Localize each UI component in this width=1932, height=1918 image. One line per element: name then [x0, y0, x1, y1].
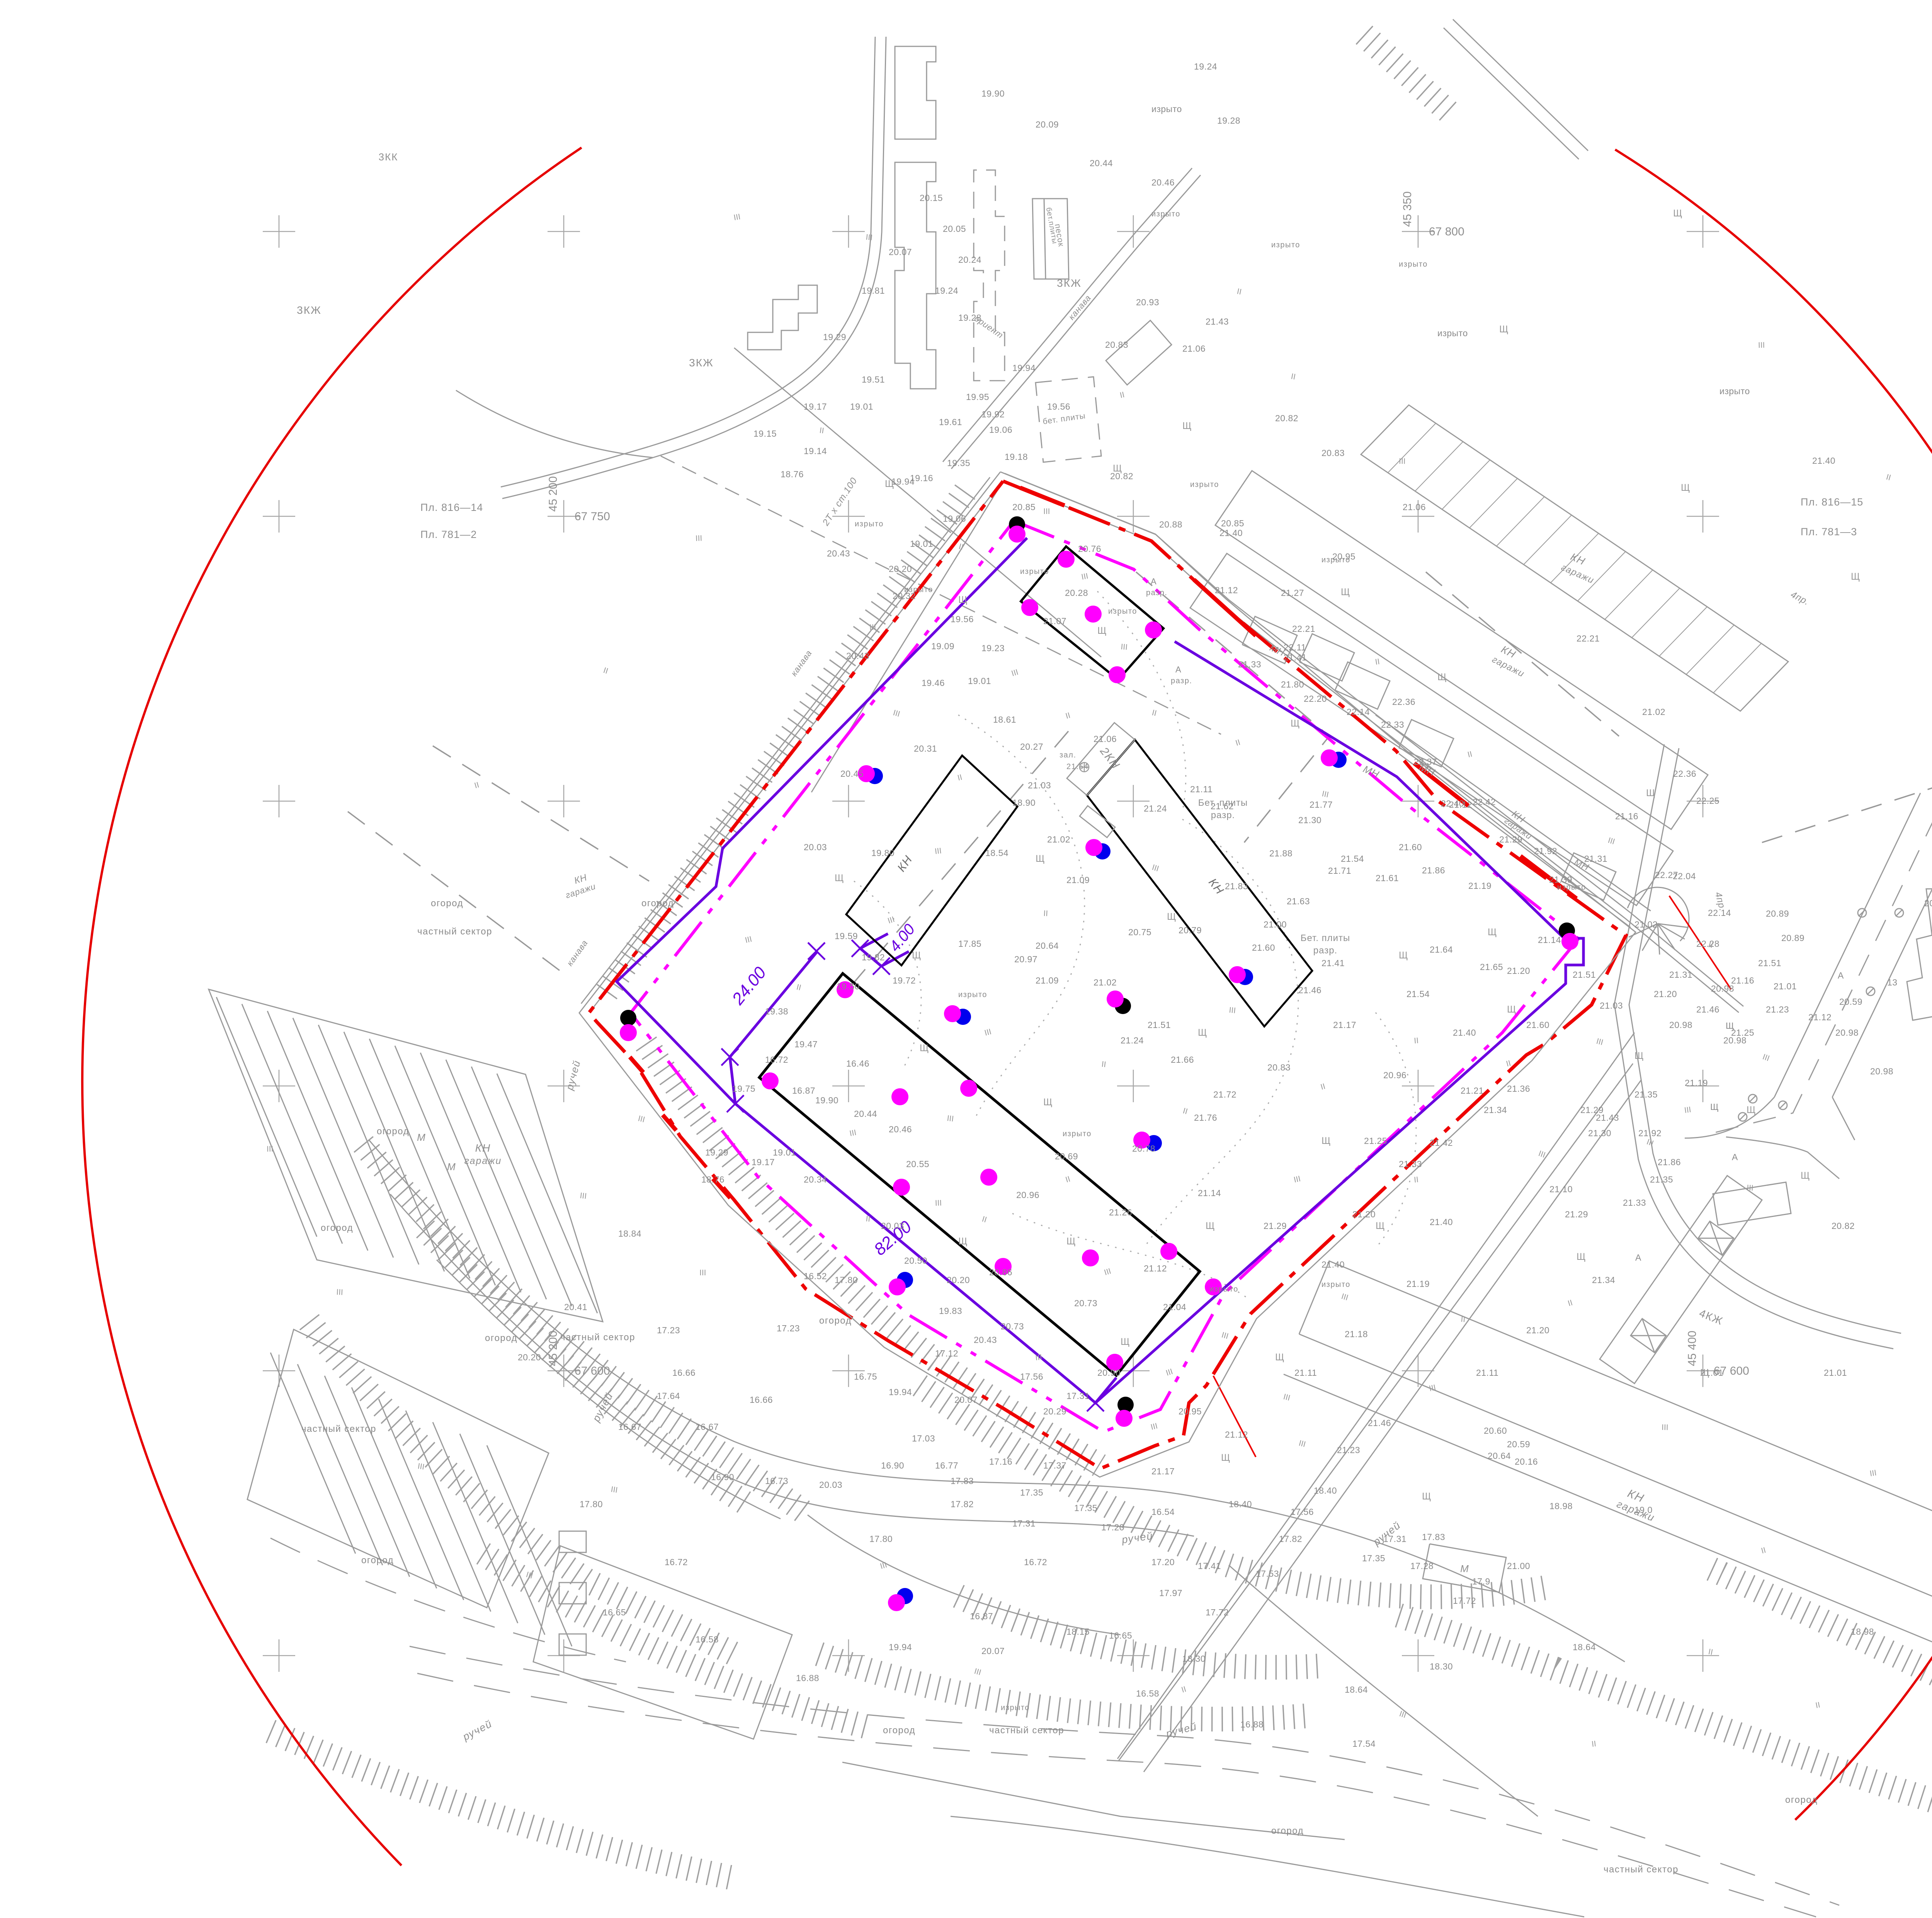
svg-text:Щ: Щ	[1113, 463, 1122, 474]
svg-text:21.19: 21.19	[1468, 881, 1492, 891]
svg-text:21.03: 21.03	[1028, 780, 1051, 790]
svg-text:М: М	[417, 1132, 425, 1143]
svg-text:21.60: 21.60	[1399, 842, 1422, 852]
svg-text:21.51: 21.51	[1148, 1020, 1171, 1030]
svg-text:20.46: 20.46	[889, 1124, 912, 1134]
svg-text:16.72: 16.72	[765, 1055, 788, 1065]
svg-text:19.09: 19.09	[931, 641, 954, 651]
svg-text:17.16: 17.16	[989, 1457, 1012, 1467]
svg-text:21.11: 21.11	[1294, 1368, 1317, 1378]
svg-text:17.28: 17.28	[1410, 1561, 1434, 1571]
svg-text:21.40: 21.40	[1812, 456, 1835, 466]
svg-text:21.02: 21.02	[1642, 707, 1665, 717]
svg-text:20.05: 20.05	[943, 224, 966, 234]
svg-text:21.17: 21.17	[1151, 1466, 1175, 1476]
svg-text:19.61: 19.61	[939, 417, 962, 427]
svg-text:16.58: 16.58	[696, 1634, 719, 1644]
svg-text:А: А	[1635, 1253, 1641, 1263]
svg-text:67 600: 67 600	[575, 1365, 610, 1377]
svg-text:III: III	[1121, 642, 1128, 652]
svg-text:20.64: 20.64	[1488, 1451, 1511, 1461]
svg-text:21.01: 21.01	[1824, 1368, 1847, 1378]
svg-text:20.20: 20.20	[947, 1275, 970, 1285]
svg-text:21.46: 21.46	[1696, 1004, 1719, 1014]
svg-text:21.02: 21.02	[1094, 977, 1117, 987]
svg-text:20.31: 20.31	[914, 744, 937, 754]
svg-text:3КЖ: 3КЖ	[689, 357, 714, 369]
svg-text:18.30: 18.30	[1430, 1661, 1453, 1671]
svg-text:19.56: 19.56	[1047, 402, 1070, 412]
svg-text:21.03: 21.03	[1600, 1001, 1623, 1011]
svg-text:19.38: 19.38	[765, 1006, 788, 1016]
svg-text:21.30: 21.30	[1588, 1128, 1611, 1138]
svg-text:III: III	[1662, 1423, 1668, 1432]
svg-text:21.02: 21.02	[1047, 834, 1070, 844]
svg-text:20.03: 20.03	[804, 842, 827, 852]
svg-text:21.09: 21.09	[1036, 975, 1059, 985]
svg-text:изрыто: изрыто	[1271, 241, 1300, 249]
svg-text:19.14: 19.14	[804, 446, 827, 456]
svg-text:Бет. плиты: Бет. плиты	[1198, 798, 1248, 808]
svg-text:19.94: 19.94	[1012, 363, 1036, 373]
svg-text:21.64: 21.64	[1430, 945, 1453, 955]
svg-text:16.54: 16.54	[1151, 1507, 1175, 1517]
svg-text:А: А	[1732, 1152, 1738, 1162]
svg-text:изрыто: изрыто	[1020, 567, 1049, 576]
svg-text:III: III	[336, 1288, 344, 1297]
svg-text:20.41: 20.41	[564, 1302, 587, 1312]
svg-text:21.12: 21.12	[1144, 1263, 1167, 1273]
svg-text:22.36: 22.36	[1392, 697, 1415, 707]
svg-text:21.72: 21.72	[1213, 1089, 1236, 1099]
svg-text:17.56: 17.56	[1020, 1372, 1043, 1382]
svg-text:21.06: 21.06	[1094, 734, 1117, 744]
svg-text:III: III	[695, 534, 702, 543]
svg-text:20.98: 20.98	[1835, 1028, 1859, 1038]
svg-text:20.95: 20.95	[1179, 1406, 1202, 1416]
svg-text:20.97: 20.97	[1014, 954, 1037, 964]
svg-text:18.76: 18.76	[781, 469, 804, 479]
svg-text:16.87: 16.87	[792, 1086, 815, 1096]
svg-text:17.82: 17.82	[1279, 1534, 1302, 1544]
svg-text:II: II	[1413, 1036, 1419, 1045]
svg-text:20.09: 20.09	[1036, 119, 1059, 129]
svg-text:21.12: 21.12	[1225, 1430, 1248, 1440]
svg-text:20.98: 20.98	[1870, 1066, 1893, 1076]
svg-text:21.61: 21.61	[1376, 873, 1399, 883]
svg-text:II: II	[1413, 1175, 1419, 1184]
svg-text:21.31: 21.31	[1669, 970, 1692, 980]
svg-text:21.88: 21.88	[1269, 848, 1293, 858]
svg-text:17.85: 17.85	[958, 939, 981, 949]
svg-text:20.85: 20.85	[1221, 518, 1244, 528]
svg-text:21.06: 21.06	[1403, 502, 1426, 512]
svg-text:огород: огород	[883, 1725, 915, 1736]
svg-text:17.80: 17.80	[869, 1534, 893, 1544]
svg-text:16.67: 16.67	[696, 1422, 719, 1432]
svg-text:17.97: 17.97	[1159, 1588, 1182, 1598]
svg-text:21.00: 21.00	[1264, 919, 1287, 929]
svg-text:16.87: 16.87	[970, 1611, 993, 1621]
svg-text:21.02: 21.02	[1634, 919, 1658, 929]
svg-text:17.56: 17.56	[1291, 1507, 1314, 1517]
svg-text:20.83: 20.83	[1321, 448, 1345, 458]
svg-text:18.40: 18.40	[1314, 1486, 1337, 1496]
svg-text:17.9: 17.9	[1472, 1576, 1490, 1586]
svg-text:18.54: 18.54	[985, 848, 1009, 858]
svg-text:21.35: 21.35	[1634, 1089, 1658, 1099]
svg-text:18.15: 18.15	[1066, 1627, 1090, 1637]
svg-text:21.41: 21.41	[1284, 652, 1307, 662]
svg-text:45 200: 45 200	[547, 476, 560, 512]
svg-text:частный сектор: частный сектор	[989, 1725, 1064, 1736]
svg-text:21.65: 21.65	[1480, 962, 1503, 972]
svg-text:Щ: Щ	[1206, 1220, 1214, 1231]
svg-text:22.36: 22.36	[1673, 769, 1696, 779]
svg-text:21.12: 21.12	[1215, 585, 1238, 595]
svg-text:III: III	[610, 1485, 618, 1494]
svg-text:22.21: 22.21	[1292, 624, 1315, 634]
svg-text:21.35: 21.35	[1650, 1174, 1673, 1184]
svg-text:20.89: 20.89	[1781, 933, 1804, 943]
svg-text:Пл. 781—3: Пл. 781—3	[1801, 526, 1857, 538]
svg-text:16.65: 16.65	[1109, 1630, 1132, 1641]
svg-text:изрыто: изрыто	[1557, 883, 1586, 892]
svg-text:21.43: 21.43	[1206, 317, 1229, 327]
svg-text:17.72: 17.72	[1453, 1596, 1476, 1606]
svg-text:III: III	[865, 233, 873, 242]
svg-text:19.01: 19.01	[910, 539, 933, 549]
svg-text:20.15: 20.15	[920, 193, 943, 203]
svg-text:20.85: 20.85	[1012, 502, 1036, 512]
svg-text:А: А	[1838, 970, 1844, 980]
svg-text:огород: огород	[361, 1555, 394, 1566]
svg-text:19.01: 19.01	[968, 676, 991, 686]
svg-text:19.47: 19.47	[794, 1039, 818, 1049]
svg-text:изрыто: изрыто	[1437, 328, 1468, 338]
svg-text:20.07: 20.07	[889, 247, 912, 257]
svg-text:17.31: 17.31	[1012, 1518, 1036, 1528]
svg-text:17.20: 17.20	[1101, 1522, 1124, 1532]
svg-text:II: II	[865, 1214, 871, 1224]
svg-text:21.25: 21.25	[1364, 1136, 1387, 1146]
svg-text:21.40: 21.40	[1321, 1259, 1345, 1270]
svg-text:21.19: 21.19	[1406, 1279, 1430, 1289]
svg-text:Щ: Щ	[1097, 625, 1106, 636]
svg-text:67 800: 67 800	[1429, 225, 1464, 238]
svg-text:19.46: 19.46	[922, 678, 945, 688]
svg-text:21.04: 21.04	[1163, 1302, 1186, 1312]
svg-text:21.86: 21.86	[1422, 865, 1445, 875]
svg-text:Щ: Щ	[1275, 1352, 1284, 1363]
svg-text:Щ: Щ	[1066, 1236, 1075, 1247]
svg-text:Щ: Щ	[958, 594, 967, 605]
svg-text:зал.: зал.	[1060, 751, 1077, 759]
svg-text:20.89: 20.89	[1766, 909, 1789, 919]
svg-text:Пл. 781—2: Пл. 781—2	[420, 529, 477, 540]
svg-text:18.64: 18.64	[1573, 1642, 1596, 1652]
svg-text:19.56: 19.56	[951, 614, 974, 624]
svg-text:18.30: 18.30	[1182, 1654, 1206, 1664]
svg-text:20.45: 20.45	[840, 769, 864, 779]
svg-text:21.24: 21.24	[1144, 803, 1167, 813]
svg-text:21.09: 21.09	[1066, 875, 1090, 885]
svg-text:Щ: Щ	[1507, 1004, 1516, 1015]
svg-text:20.50: 20.50	[904, 1256, 927, 1266]
svg-text:20.27: 20.27	[1020, 742, 1043, 752]
svg-text:17.23: 17.23	[777, 1323, 800, 1333]
svg-text:18.76: 18.76	[701, 1174, 724, 1184]
svg-text:А: А	[1151, 577, 1157, 586]
svg-text:20.93: 20.93	[1136, 297, 1159, 307]
svg-text:III: III	[1399, 457, 1406, 466]
svg-text:20.28: 20.28	[1065, 588, 1088, 598]
svg-text:16.73: 16.73	[765, 1476, 788, 1486]
svg-text:21.54: 21.54	[1406, 989, 1430, 999]
svg-text:21.24: 21.24	[1121, 1035, 1144, 1045]
svg-text:Щ: Щ	[958, 1236, 967, 1247]
svg-text:19.94: 19.94	[889, 1642, 912, 1652]
svg-text:частный сектор: частный сектор	[301, 1424, 376, 1434]
svg-text:20.46: 20.46	[1151, 177, 1175, 187]
svg-text:17.31: 17.31	[1066, 1391, 1090, 1401]
svg-text:20.44: 20.44	[1090, 158, 1113, 168]
svg-text:20.20: 20.20	[889, 564, 912, 574]
svg-text:45 350: 45 350	[1401, 191, 1414, 227]
svg-text:М: М	[1460, 1563, 1469, 1574]
svg-text:III: III	[1228, 1006, 1236, 1015]
svg-text:Щ: Щ	[1710, 1102, 1719, 1112]
svg-text:19.72: 19.72	[893, 975, 916, 985]
svg-text:21.40: 21.40	[1219, 528, 1243, 538]
svg-text:20.07: 20.07	[954, 1395, 978, 1405]
svg-text:3КЖ: 3КЖ	[297, 304, 321, 316]
svg-text:19.24: 19.24	[1194, 61, 1217, 71]
svg-text:21.33: 21.33	[1623, 1198, 1646, 1208]
svg-text:17.80: 17.80	[835, 1275, 858, 1285]
svg-text:20.43: 20.43	[827, 548, 850, 558]
svg-text:19.29: 19.29	[823, 332, 846, 342]
svg-text:Щ: Щ	[835, 873, 844, 883]
svg-text:Щ: Щ	[1121, 1336, 1129, 1347]
svg-text:16.88: 16.88	[1240, 1719, 1264, 1729]
svg-text:21.33: 21.33	[1238, 659, 1261, 669]
svg-text:21.23: 21.23	[1337, 1445, 1360, 1455]
svg-text:19.18: 19.18	[1005, 452, 1028, 462]
svg-text:20.44: 20.44	[854, 1109, 877, 1119]
svg-text:21.29: 21.29	[1565, 1209, 1588, 1219]
svg-text:16.58: 16.58	[1136, 1688, 1159, 1698]
svg-text:20.79: 20.79	[1179, 925, 1202, 935]
svg-text:21.14: 21.14	[1538, 935, 1561, 945]
svg-text:Щ: Щ	[1577, 1251, 1585, 1262]
svg-text:19.80: 19.80	[871, 848, 895, 858]
svg-text:20.24: 20.24	[958, 255, 981, 265]
svg-text:22.27: 22.27	[1655, 870, 1678, 880]
svg-text:21.16: 21.16	[1731, 975, 1754, 985]
svg-text:20.82: 20.82	[1832, 1221, 1855, 1231]
svg-text:III: III	[869, 623, 876, 632]
svg-text:III: III	[1043, 507, 1050, 516]
svg-text:изрыто: изрыто	[1151, 104, 1182, 114]
svg-text:21.36: 21.36	[1507, 1084, 1530, 1094]
svg-text:19.90: 19.90	[981, 88, 1005, 99]
svg-text:16.75: 16.75	[854, 1372, 877, 1382]
svg-text:20.86: 20.86	[989, 1267, 1012, 1277]
svg-text:частный сектор: частный сектор	[560, 1332, 635, 1343]
svg-text:21.40: 21.40	[1453, 1028, 1476, 1038]
svg-text:изрыто: изрыто	[1399, 260, 1428, 269]
svg-text:19.16: 19.16	[910, 473, 933, 483]
svg-text:3КК: 3КК	[379, 151, 398, 163]
svg-text:20.73: 20.73	[1074, 1298, 1097, 1308]
svg-text:17.72: 17.72	[1206, 1607, 1229, 1617]
svg-text:16.72: 16.72	[1024, 1557, 1047, 1567]
svg-text:изрыто: изрыто	[1001, 1704, 1030, 1712]
svg-text:21.60: 21.60	[1252, 943, 1275, 953]
svg-text:20.29: 20.29	[1043, 1406, 1066, 1416]
svg-text:16.72: 16.72	[665, 1557, 688, 1567]
svg-text:Щ: Щ	[1747, 1105, 1755, 1115]
svg-text:17.20: 17.20	[1151, 1557, 1175, 1567]
svg-text:III: III	[699, 1268, 706, 1277]
svg-text:17.54: 17.54	[1352, 1739, 1376, 1749]
svg-text:III: III	[1684, 1105, 1692, 1115]
svg-text:18.90: 18.90	[1012, 798, 1036, 808]
svg-text:21.01: 21.01	[1774, 981, 1797, 991]
svg-text:III: III	[1758, 341, 1765, 350]
svg-text:21.71: 21.71	[1328, 866, 1351, 876]
svg-text:21.86: 21.86	[1658, 1157, 1681, 1167]
svg-text:16.66: 16.66	[672, 1368, 696, 1378]
svg-text:20.76: 20.76	[1078, 544, 1101, 554]
svg-text:разр.: разр.	[1211, 810, 1235, 820]
svg-text:огород: огород	[1785, 1795, 1818, 1805]
svg-text:18.61: 18.61	[993, 715, 1016, 725]
svg-text:21.21: 21.21	[1461, 1086, 1484, 1096]
svg-text:Щ: Щ	[1221, 1452, 1230, 1463]
svg-text:17.23: 17.23	[657, 1325, 680, 1335]
svg-text:Щ: Щ	[1422, 1491, 1431, 1502]
svg-text:21.51: 21.51	[1573, 970, 1596, 980]
svg-text:21.11: 21.11	[1190, 784, 1213, 794]
svg-text:III: III	[946, 1114, 954, 1123]
svg-text:20.75: 20.75	[1128, 927, 1151, 937]
svg-text:21.20: 21.20	[1507, 966, 1530, 976]
svg-text:3КЖ: 3КЖ	[1057, 277, 1082, 289]
svg-text:45 200: 45 200	[547, 1331, 560, 1366]
svg-text:Щ: Щ	[920, 1043, 929, 1053]
svg-text:19.95: 19.95	[966, 392, 989, 402]
svg-text:16.88: 16.88	[796, 1673, 819, 1683]
svg-text:19.83: 19.83	[939, 1306, 962, 1316]
svg-text:21.92: 21.92	[1638, 1128, 1662, 1138]
svg-text:21.63: 21.63	[1287, 896, 1310, 906]
svg-text:21.18: 21.18	[1345, 1329, 1368, 1339]
svg-text:17.83: 17.83	[1422, 1532, 1445, 1542]
svg-text:21.23: 21.23	[1766, 1004, 1789, 1014]
svg-text:изрыто: изрыто	[1321, 1280, 1350, 1289]
svg-text:огород: огород	[377, 1126, 409, 1137]
svg-text:21.92: 21.92	[1534, 846, 1557, 856]
svg-text:гаражи: гаражи	[464, 1156, 502, 1166]
svg-text:21.66: 21.66	[1171, 1055, 1194, 1065]
svg-text:18.84: 18.84	[618, 1229, 641, 1239]
svg-text:20.34: 20.34	[804, 1174, 827, 1184]
svg-text:21.26: 21.26	[1109, 1207, 1132, 1217]
svg-text:20.78: 20.78	[1132, 1144, 1155, 1154]
svg-text:21.20: 21.20	[1654, 989, 1677, 999]
svg-text:II: II	[1043, 909, 1048, 918]
svg-text:22.25: 22.25	[1696, 796, 1719, 806]
svg-text:Щ: Щ	[1646, 788, 1655, 798]
svg-text:17.37: 17.37	[1043, 1460, 1066, 1470]
svg-text:Щ: Щ	[1291, 718, 1299, 729]
svg-text:Щ: Щ	[1043, 1097, 1052, 1108]
svg-text:разр.: разр.	[1171, 677, 1192, 685]
svg-text:Щ: Щ	[1634, 1050, 1643, 1061]
svg-text:20.64: 20.64	[1036, 941, 1059, 951]
svg-text:21.16: 21.16	[1615, 811, 1638, 821]
svg-text:разр.: разр.	[1313, 945, 1337, 956]
svg-text:21.00: 21.00	[1507, 1561, 1530, 1571]
svg-text:22.42: 22.42	[1473, 797, 1496, 807]
svg-text:20.03: 20.03	[819, 1480, 842, 1490]
svg-text:21.83: 21.83	[1225, 881, 1248, 891]
svg-text:М: М	[447, 1161, 456, 1173]
svg-text:Щ: Щ	[1182, 420, 1191, 431]
svg-text:17.80: 17.80	[580, 1499, 603, 1509]
svg-text:изрыто: изрыто	[1209, 1285, 1238, 1293]
svg-text:Щ: Щ	[1167, 911, 1176, 922]
svg-text:21.42: 21.42	[1430, 1138, 1453, 1148]
svg-text:Щ: Щ	[885, 478, 894, 489]
svg-text:частный сектор: частный сектор	[417, 926, 492, 937]
svg-text:22.21: 22.21	[1577, 633, 1600, 643]
svg-text:огород: огород	[321, 1223, 353, 1233]
svg-text:19.06: 19.06	[943, 514, 966, 524]
svg-text:20.43: 20.43	[846, 651, 869, 661]
svg-text:18.98: 18.98	[1851, 1627, 1874, 1637]
svg-text:КН: КН	[475, 1142, 491, 1154]
svg-text:17.53: 17.53	[1256, 1569, 1279, 1579]
svg-text:III: III	[1747, 1183, 1754, 1193]
svg-text:Щ: Щ	[1399, 950, 1408, 961]
svg-text:огород: огород	[485, 1333, 517, 1343]
svg-text:Щ: Щ	[1198, 1027, 1207, 1038]
svg-text:22.14: 22.14	[1347, 707, 1370, 717]
svg-text:Щ: Щ	[1801, 1170, 1810, 1181]
svg-text:19.82: 19.82	[862, 952, 885, 962]
svg-text:19.50: 19.50	[837, 981, 860, 991]
svg-text:16.65: 16.65	[603, 1607, 626, 1617]
svg-text:19.35: 19.35	[947, 458, 970, 468]
svg-text:19.01: 19.01	[850, 402, 873, 412]
svg-text:Щ: Щ	[912, 950, 921, 961]
svg-text:изрыто: изрыто	[1719, 386, 1750, 396]
svg-text:изрыто: изрыто	[1063, 1130, 1092, 1138]
svg-text:Щ: Щ	[1673, 208, 1682, 219]
svg-text:Щ: Щ	[1499, 324, 1508, 335]
svg-text:21.40: 21.40	[1430, 1217, 1453, 1227]
svg-text:II: II	[1461, 1315, 1466, 1324]
svg-text:21.12: 21.12	[1808, 1012, 1832, 1022]
svg-text:21.29: 21.29	[1499, 834, 1522, 844]
svg-text:Щ: Щ	[1437, 672, 1446, 682]
svg-text:19.17: 19.17	[804, 402, 827, 412]
svg-text:16.66: 16.66	[750, 1395, 773, 1405]
svg-text:изрыто: изрыто	[855, 520, 884, 528]
